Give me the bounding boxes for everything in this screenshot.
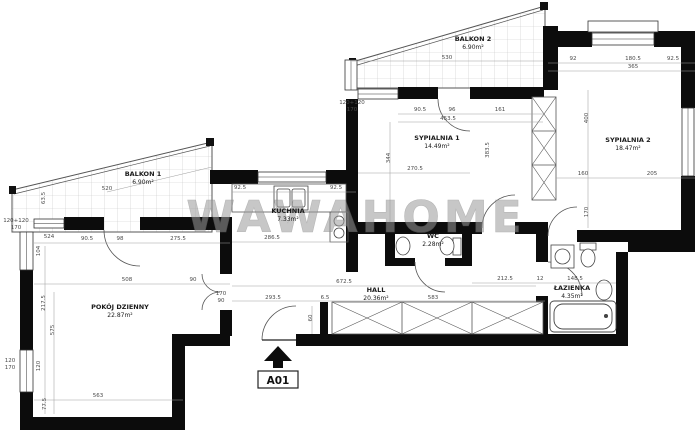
dimension-label: 63.5 xyxy=(41,191,47,204)
dimension-label: 60 xyxy=(308,314,314,321)
dimension-label: 453.5 xyxy=(440,116,456,122)
dimension-label: 524 xyxy=(44,234,55,240)
dimension-label: 365 xyxy=(628,64,639,70)
dimension-label: 170 xyxy=(11,225,22,231)
dimension-label: 286.5 xyxy=(264,235,280,241)
dimension-label: 293.5 xyxy=(265,295,281,301)
dimension-label: 344 xyxy=(386,152,392,163)
watermark-text: WAWAHOME xyxy=(186,192,525,243)
dimension-label: 96 xyxy=(449,107,456,113)
dimension-label: 98 xyxy=(117,236,124,242)
dimension-label: 90 xyxy=(190,277,197,283)
dimension-label: 92.5 xyxy=(330,185,343,191)
dimension-label: 120 xyxy=(5,358,16,364)
wardrobe-hall xyxy=(332,302,543,334)
floor-plan-svg: A01 WAWAHOME BALKON 16.90m²BALKON 26.90m… xyxy=(0,0,700,433)
dimension-label: 160 xyxy=(578,171,589,177)
bathroom-toilet xyxy=(580,243,596,267)
dimension-label: 120+120 xyxy=(3,218,29,224)
dimension-label: 530 xyxy=(442,55,453,61)
dimension-label: 92.5 xyxy=(234,185,247,191)
dimension-label: 77.5 xyxy=(42,397,48,410)
dimension-label: 508 xyxy=(122,277,133,283)
dimension-label: 12 xyxy=(537,276,544,282)
dimension-label: 90.5 xyxy=(81,236,94,242)
dimension-label: 672.5 xyxy=(336,279,352,285)
floor-plan-page: A01 WAWAHOME BALKON 16.90m²BALKON 26.90m… xyxy=(0,0,700,433)
washing-machine xyxy=(551,245,574,268)
dimension-label: 170 xyxy=(5,365,16,371)
room-label-lazienka: ŁAZIENKA4.35m² xyxy=(553,284,590,300)
room-label-sypialnia-2: SYPIALNIA 218.47m² xyxy=(605,136,650,152)
dimension-label: 575 xyxy=(50,324,56,335)
dimension-label: 583 xyxy=(428,295,439,301)
dimension-label: 563 xyxy=(93,393,104,399)
dimension-label: 275.5 xyxy=(170,236,186,242)
room-label-pokoj-dzienny: POKÓJ DZIENNY22.87m² xyxy=(91,302,149,319)
dimension-label: 161 xyxy=(495,107,506,113)
bathtub xyxy=(550,301,616,332)
dimension-label: 270.5 xyxy=(407,166,423,172)
dimension-label: 104 xyxy=(36,245,42,256)
room-label-hall: HALL20.36m² xyxy=(363,286,389,302)
dimension-label: 90.5 xyxy=(414,107,427,113)
dimension-label: 170 xyxy=(584,206,590,217)
dimension-label: 180.5 xyxy=(625,56,641,62)
entrance-arrow-icon xyxy=(264,346,292,368)
dimension-label: 212.5 xyxy=(497,276,513,282)
room-label-sypialnia-1: SYPIALNIA 114.49m² xyxy=(414,134,460,150)
dimension-label: 400 xyxy=(584,112,590,123)
dimension-label: 205 xyxy=(647,171,658,177)
wardrobe-bedroom2 xyxy=(532,97,556,200)
entrance-label: A01 xyxy=(267,375,290,387)
dimension-label: 92 xyxy=(570,56,577,62)
dimension-label: 6.5 xyxy=(321,295,330,301)
dimension-label: 170 xyxy=(347,107,358,113)
dimension-label: 217.5 xyxy=(41,295,47,311)
dimension-label: 90 xyxy=(218,298,225,304)
dimension-label: 92.5 xyxy=(667,56,680,62)
dimension-label: 383.5 xyxy=(485,142,491,158)
balcony-2-terrace xyxy=(349,2,548,88)
dimension-label: 520 xyxy=(102,186,113,192)
dimension-label: 170 xyxy=(216,291,227,297)
dimension-label: 120 xyxy=(36,360,42,371)
entrance-label-box: A01 xyxy=(258,371,298,388)
dimension-label: 120+120 xyxy=(339,100,365,106)
dimension-label: 148.5 xyxy=(567,276,583,282)
